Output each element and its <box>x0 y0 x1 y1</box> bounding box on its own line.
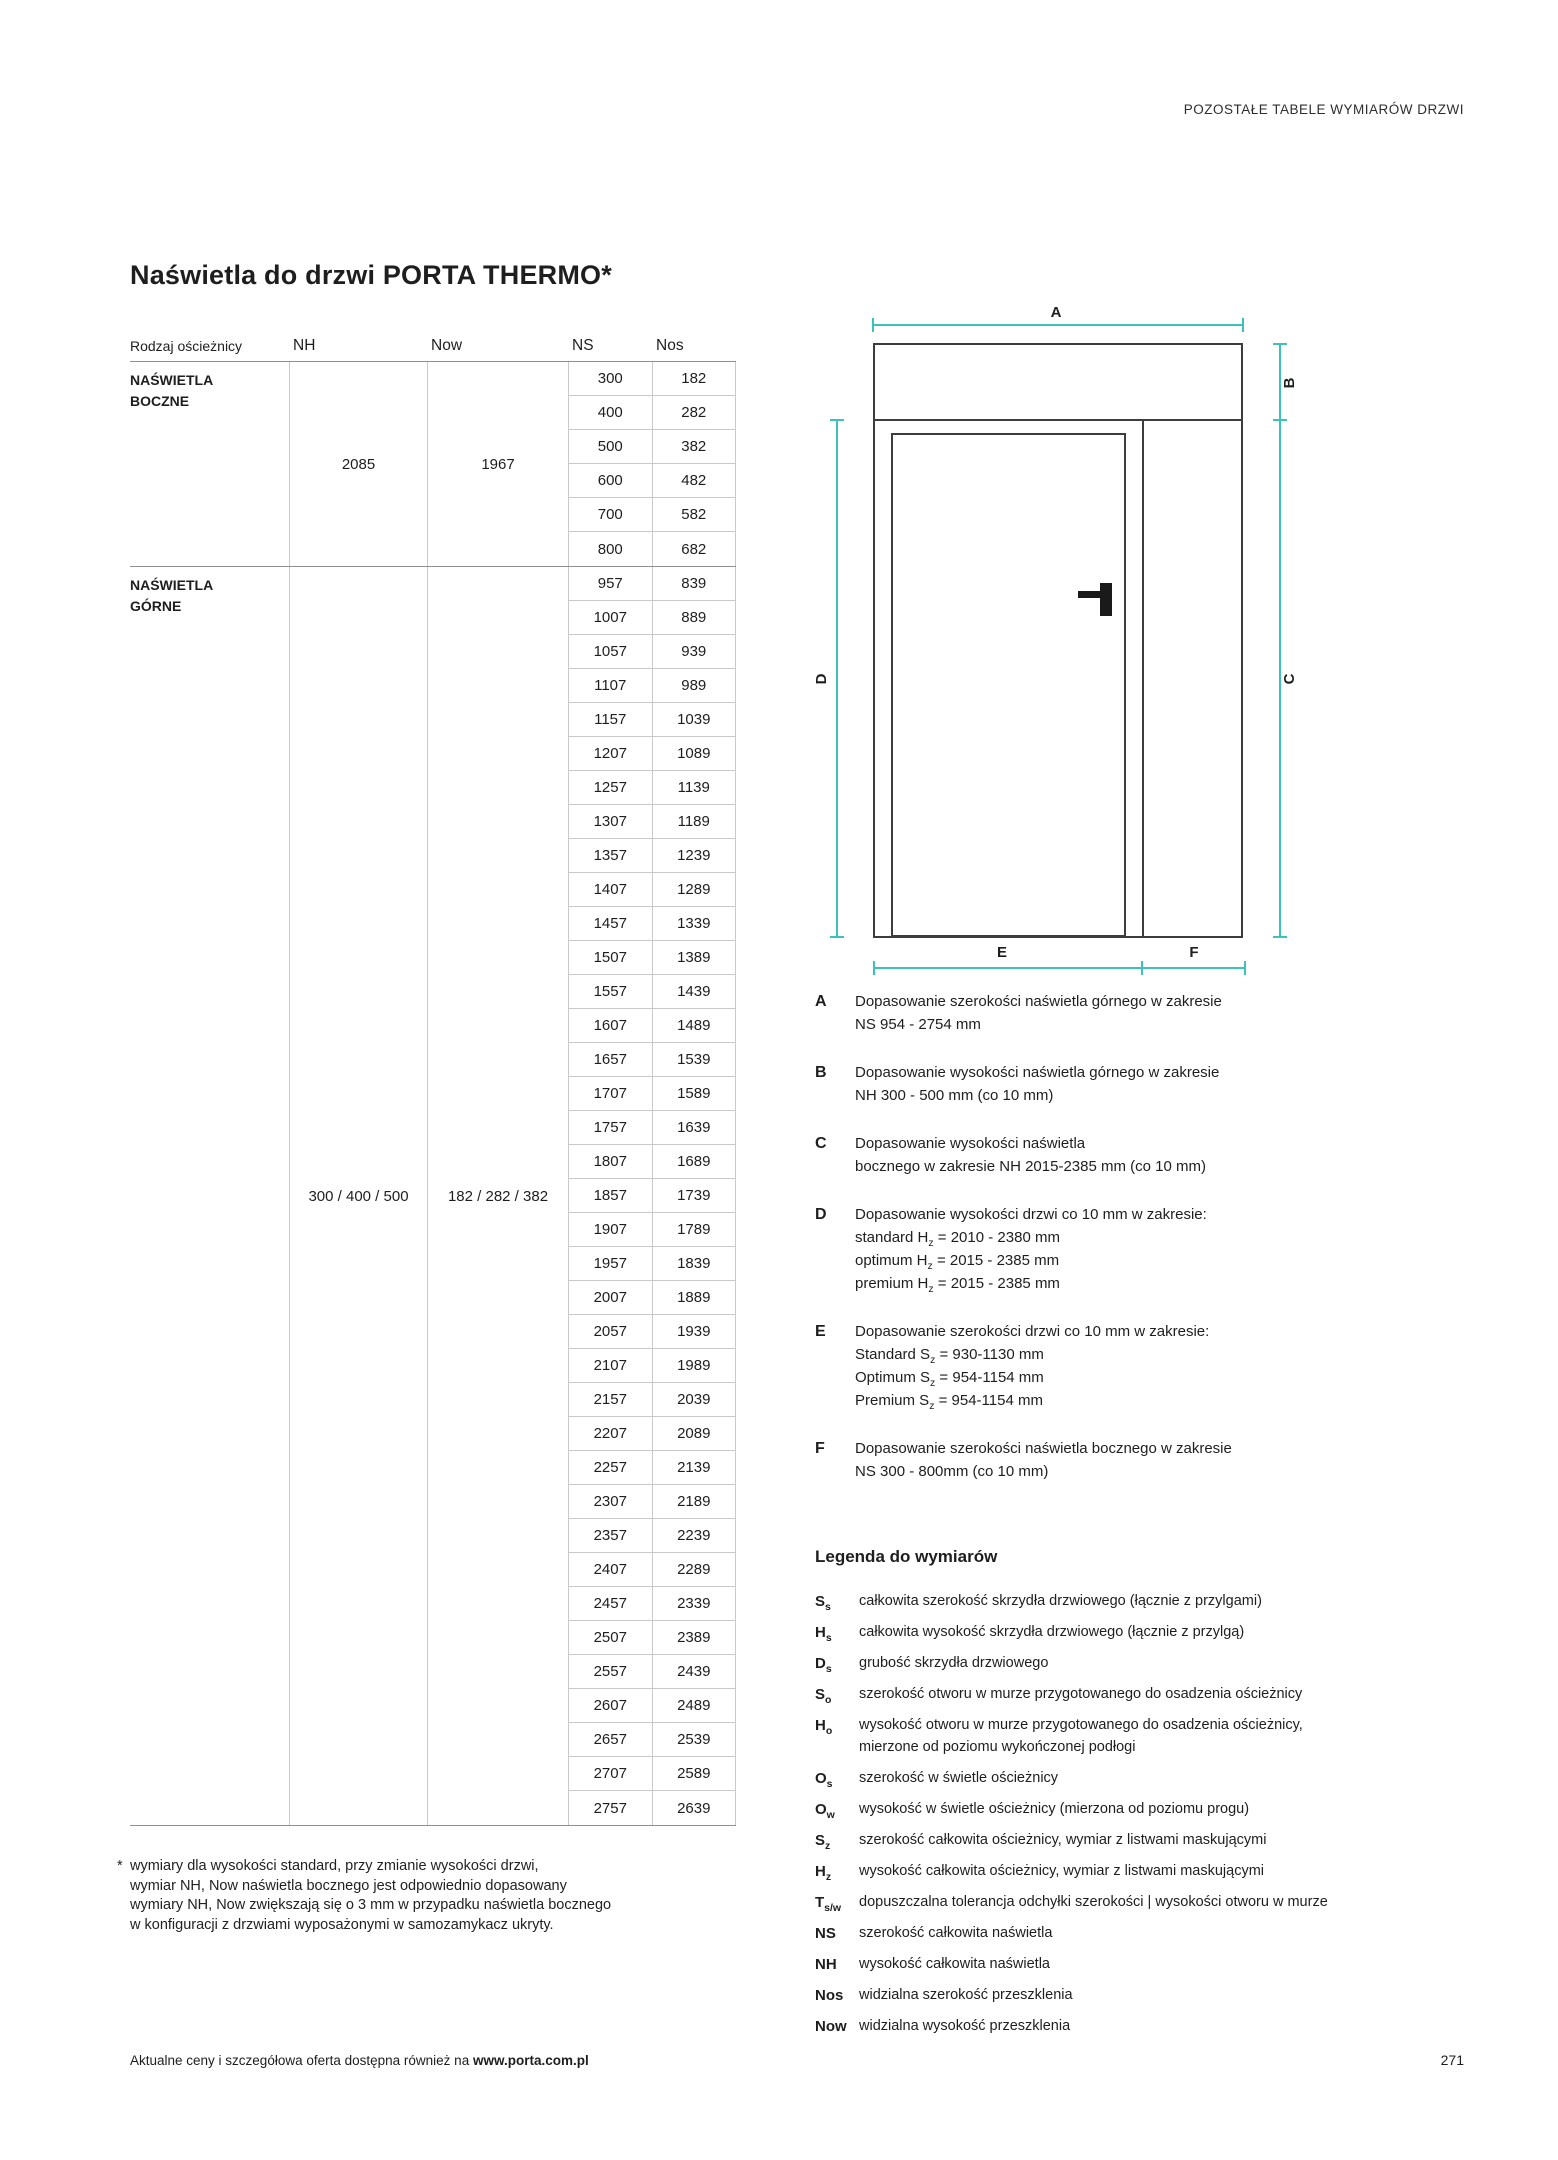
table-row: 24572339 <box>569 1587 735 1621</box>
column-header-ns: NS <box>568 337 652 355</box>
diagram-label-b: B <box>1281 377 1298 388</box>
ns-value: 1157 <box>569 703 653 736</box>
footnote-line: wymiary NH, Now zwiększają się o 3 mm w … <box>130 1896 611 1916</box>
door-handle-plate <box>1100 583 1112 616</box>
dimensions-table: Rodzaj ościeżnicy NH Now NS Nos NAŚWIETL… <box>130 330 736 1826</box>
ns-value: 1407 <box>569 873 653 906</box>
legend-item: Soszerokość otworu w murze przygotowaneg… <box>815 1684 1445 1706</box>
table-row: 15571439 <box>569 975 735 1009</box>
nos-value: 582 <box>653 498 736 531</box>
dimension-description: Dopasowanie wysokości naświetlabocznego … <box>855 1132 1206 1178</box>
legend-symbol: Ds <box>815 1653 859 1675</box>
nos-value: 2339 <box>653 1587 736 1620</box>
footer-link[interactable]: www.porta.com.pl <box>473 2053 589 2068</box>
legend-item: NSszerokość całkowita naświetla <box>815 1923 1445 1945</box>
ns-value: 2507 <box>569 1621 653 1654</box>
ns-value: 500 <box>569 430 653 463</box>
nos-value: 2439 <box>653 1655 736 1688</box>
ns-value: 2157 <box>569 1383 653 1416</box>
ns-value: 2007 <box>569 1281 653 1314</box>
table-row: 17571639 <box>569 1111 735 1145</box>
dimension-letter: F <box>815 1437 855 1483</box>
table-row: 19571839 <box>569 1247 735 1281</box>
legend-symbol: Sz <box>815 1830 859 1852</box>
table-row: 14071289 <box>569 873 735 907</box>
table-row: 700582 <box>569 498 735 532</box>
diagram-label-a: A <box>1051 304 1062 321</box>
now-value: 1967 <box>427 362 568 566</box>
footnote-line: wymiary dla wysokości standard, przy zmi… <box>130 1857 611 1877</box>
legend-description: całkowita szerokość skrzydła drzwiowego … <box>859 1591 1262 1613</box>
table-row: 13571239 <box>569 839 735 873</box>
dimension-description: Dopasowanie wysokości drzwi co 10 mm w z… <box>855 1203 1207 1295</box>
column-header-rodzaj: Rodzaj ościeżnicy <box>130 338 289 354</box>
table-row: 20071889 <box>569 1281 735 1315</box>
table-row: 26572539 <box>569 1723 735 1757</box>
table-group-naswietla-boczne: NAŚWIETLA BOCZNE 2085 1967 3001824002825… <box>130 361 736 566</box>
legend-item: Hscałkowita wysokość skrzydła drzwiowego… <box>815 1622 1445 1644</box>
table-row: 12071089 <box>569 737 735 771</box>
legend-symbol: Ts/w <box>815 1892 859 1914</box>
group-label: NAŚWIETLA GÓRNE <box>130 567 289 1825</box>
column-header-now: Now <box>427 337 568 355</box>
dimension-description: Dopasowanie szerokości naświetla górnego… <box>855 990 1222 1036</box>
legend-description: dopuszczalna tolerancja odchyłki szeroko… <box>859 1892 1328 1914</box>
nos-value: 1739 <box>653 1179 736 1212</box>
nos-value: 1139 <box>653 771 736 804</box>
legend-description: wysokość w świetle ościeżnicy (mierzona … <box>859 1799 1249 1821</box>
legend-symbol: Nos <box>815 1985 859 2007</box>
nos-value: 1039 <box>653 703 736 736</box>
dimension-letter: D <box>815 1203 855 1295</box>
legend-item: Ts/wdopuszczalna tolerancja odchyłki sze… <box>815 1892 1445 1914</box>
door-leaf <box>892 434 1125 936</box>
dimension-letter: E <box>815 1320 855 1412</box>
nos-value: 682 <box>653 532 736 566</box>
nh-value: 2085 <box>289 362 427 566</box>
legend-description: wysokość całkowita ościeżnicy, wymiar z … <box>859 1861 1264 1883</box>
ns-value: 2457 <box>569 1587 653 1620</box>
ns-value: 1057 <box>569 635 653 668</box>
ns-value: 2207 <box>569 1417 653 1450</box>
table-row: 400282 <box>569 396 735 430</box>
ns-value: 1807 <box>569 1145 653 1178</box>
ns-value: 2257 <box>569 1451 653 1484</box>
table-row: 25572439 <box>569 1655 735 1689</box>
footnote-text: wymiary dla wysokości standard, przy zmi… <box>130 1857 611 1935</box>
ns-value: 1757 <box>569 1111 653 1144</box>
table-row: 1057939 <box>569 635 735 669</box>
table-row: 17071589 <box>569 1077 735 1111</box>
page-title: Naświetla do drzwi PORTA THERMO* <box>130 260 612 291</box>
nos-value: 1989 <box>653 1349 736 1382</box>
ns-value: 1557 <box>569 975 653 1008</box>
legend-description: grubość skrzydła drzwiowego <box>859 1653 1048 1675</box>
diagram-label-f: F <box>1189 944 1198 961</box>
table-row: 12571139 <box>569 771 735 805</box>
ns-value: 1207 <box>569 737 653 770</box>
legend-symbol: Ow <box>815 1799 859 1821</box>
ns-value: 1457 <box>569 907 653 940</box>
table-row: 800682 <box>569 532 735 566</box>
legend-description: całkowita wysokość skrzydła drzwiowego (… <box>859 1622 1244 1644</box>
ns-value: 957 <box>569 567 653 600</box>
legend-item: NHwysokość całkowita naświetla <box>815 1954 1445 1976</box>
nos-value: 1339 <box>653 907 736 940</box>
page-footer: Aktualne ceny i szczegółowa oferta dostę… <box>130 2053 589 2068</box>
ns-value: 1007 <box>569 601 653 634</box>
legend-symbol: Hs <box>815 1622 859 1644</box>
nos-value: 1639 <box>653 1111 736 1144</box>
table-row: 1007889 <box>569 601 735 635</box>
legend-description: szerokość całkowita naświetla <box>859 1923 1052 1945</box>
nos-value: 2539 <box>653 1723 736 1756</box>
dimension-description: Dopasowanie szerokości drzwi co 10 mm w … <box>855 1320 1209 1412</box>
dimension-description: Dopasowanie szerokości naświetla boczneg… <box>855 1437 1232 1483</box>
symbol-legend-items: Sscałkowita szerokość skrzydła drzwioweg… <box>815 1591 1445 2037</box>
footnote-line: w konfiguracji z drzwiami wyposażonymi w… <box>130 1916 611 1936</box>
dimension-note-b: BDopasowanie wysokości naświetla górnego… <box>815 1061 1425 1107</box>
catalog-page: { "page": { "running_header": "POZOSTAŁE… <box>0 0 1558 2160</box>
nos-value: 939 <box>653 635 736 668</box>
table-row: 18071689 <box>569 1145 735 1179</box>
dimension-legend: ADopasowanie szerokości naświetla górneg… <box>815 990 1425 1508</box>
nos-value: 1289 <box>653 873 736 906</box>
nos-value: 1439 <box>653 975 736 1008</box>
ns-value: 300 <box>569 362 653 395</box>
table-row: 23572239 <box>569 1519 735 1553</box>
nos-value: 1689 <box>653 1145 736 1178</box>
table-row: 500382 <box>569 430 735 464</box>
ns-value: 1957 <box>569 1247 653 1280</box>
nos-value: 1389 <box>653 941 736 974</box>
dimension-description: Dopasowanie wysokości naświetla górnego … <box>855 1061 1219 1107</box>
symbol-legend-title: Legenda do wymiarów <box>815 1547 1445 1567</box>
nos-value: 282 <box>653 396 736 429</box>
group-label: NAŚWIETLA BOCZNE <box>130 362 289 566</box>
nos-value: 989 <box>653 669 736 702</box>
table-row: 14571339 <box>569 907 735 941</box>
table-row: 22572139 <box>569 1451 735 1485</box>
table-row: 18571739 <box>569 1179 735 1213</box>
table-row: 20571939 <box>569 1315 735 1349</box>
table-row: 26072489 <box>569 1689 735 1723</box>
legend-item: Osszerokość w świetle ościeżnicy <box>815 1768 1445 1790</box>
nos-value: 2489 <box>653 1689 736 1722</box>
nos-value: 1789 <box>653 1213 736 1246</box>
ns-value: 400 <box>569 396 653 429</box>
diagram-label-c: C <box>1281 673 1298 684</box>
legend-symbol: NH <box>815 1954 859 1976</box>
footnote: * wymiary dla wysokości standard, przy z… <box>117 1857 611 1935</box>
nos-value: 839 <box>653 567 736 600</box>
table-row: 25072389 <box>569 1621 735 1655</box>
nos-value: 1489 <box>653 1009 736 1042</box>
nos-value: 482 <box>653 464 736 497</box>
table-row: 16571539 <box>569 1043 735 1077</box>
nos-value: 2139 <box>653 1451 736 1484</box>
legend-description: szerokość otworu w murze przygotowanego … <box>859 1684 1302 1706</box>
ns-value: 2607 <box>569 1689 653 1722</box>
nos-value: 2239 <box>653 1519 736 1552</box>
legend-item: Noswidzialna szerokość przeszklenia <box>815 1985 1445 2007</box>
nos-value: 1589 <box>653 1077 736 1110</box>
legend-symbol: Now <box>815 2016 859 2038</box>
footer-text: Aktualne ceny i szczegółowa oferta dostę… <box>130 2053 473 2068</box>
table-row: 27572639 <box>569 1791 735 1825</box>
legend-description: widzialna wysokość przeszklenia <box>859 2016 1070 2038</box>
table-row: 22072089 <box>569 1417 735 1451</box>
legend-description: widzialna szerokość przeszklenia <box>859 1985 1073 2007</box>
nos-value: 889 <box>653 601 736 634</box>
ns-value: 1607 <box>569 1009 653 1042</box>
ns-value: 1907 <box>569 1213 653 1246</box>
ns-value: 2707 <box>569 1757 653 1790</box>
ns-value: 1257 <box>569 771 653 804</box>
ns-nos-rows: 300182400282500382600482700582800682 <box>568 362 736 566</box>
legend-item: Sscałkowita szerokość skrzydła drzwioweg… <box>815 1591 1445 1613</box>
ns-value: 2757 <box>569 1791 653 1825</box>
ns-value: 2657 <box>569 1723 653 1756</box>
nos-value: 1939 <box>653 1315 736 1348</box>
table-row: 13071189 <box>569 805 735 839</box>
ns-value: 1357 <box>569 839 653 872</box>
table-group-naswietla-gorne: NAŚWIETLA GÓRNE 300 / 400 / 500 182 / 28… <box>130 566 736 1825</box>
table-row: 957839 <box>569 567 735 601</box>
legend-description: szerokość całkowita ościeżnicy, wymiar z… <box>859 1830 1266 1852</box>
ns-value: 1857 <box>569 1179 653 1212</box>
table-row: 21071989 <box>569 1349 735 1383</box>
door-handle-lever <box>1078 591 1102 598</box>
table-row: 19071789 <box>569 1213 735 1247</box>
nos-value: 1089 <box>653 737 736 770</box>
footnote-line: wymiar NH, Now naświetla bocznego jest o… <box>130 1877 611 1897</box>
table-row: 15071389 <box>569 941 735 975</box>
ns-value: 2307 <box>569 1485 653 1518</box>
dimension-note-f: FDopasowanie szerokości naświetla boczne… <box>815 1437 1425 1483</box>
ns-value: 600 <box>569 464 653 497</box>
legend-symbol: NS <box>815 1923 859 1945</box>
legend-item: Szszerokość całkowita ościeżnicy, wymiar… <box>815 1830 1445 1852</box>
legend-description: wysokość całkowita naświetla <box>859 1954 1050 1976</box>
ns-value: 800 <box>569 532 653 566</box>
nh-value: 300 / 400 / 500 <box>289 567 427 1825</box>
nos-value: 2639 <box>653 1791 736 1825</box>
ns-value: 1107 <box>569 669 653 702</box>
ns-value: 2107 <box>569 1349 653 1382</box>
door-diagram: A B D C E F <box>810 290 1315 990</box>
footnote-asterisk: * <box>117 1857 130 1935</box>
legend-item: Nowwidzialna wysokość przeszklenia <box>815 2016 1445 2038</box>
legend-symbol: Hz <box>815 1861 859 1883</box>
ns-value: 2407 <box>569 1553 653 1586</box>
ns-value: 700 <box>569 498 653 531</box>
table-row: 21572039 <box>569 1383 735 1417</box>
table-header-row: Rodzaj ościeżnicy NH Now NS Nos <box>130 330 736 361</box>
legend-symbol: Ss <box>815 1591 859 1613</box>
dimension-letter: B <box>815 1061 855 1107</box>
ns-value: 1657 <box>569 1043 653 1076</box>
now-value: 182 / 282 / 382 <box>427 567 568 1825</box>
ns-nos-rows: 9578391007889105793911079891157103912071… <box>568 567 736 1825</box>
nos-value: 1839 <box>653 1247 736 1280</box>
table-row: 16071489 <box>569 1009 735 1043</box>
ns-value: 1507 <box>569 941 653 974</box>
table-row: 27072589 <box>569 1757 735 1791</box>
legend-item: Owwysokość w świetle ościeżnicy (mierzon… <box>815 1799 1445 1821</box>
ns-value: 2357 <box>569 1519 653 1552</box>
legend-item: Howysokość otworu w murze przygotowanego… <box>815 1715 1445 1758</box>
nos-value: 182 <box>653 362 736 395</box>
table-row: 11571039 <box>569 703 735 737</box>
nos-value: 2389 <box>653 1621 736 1654</box>
nos-value: 1539 <box>653 1043 736 1076</box>
ns-value: 1307 <box>569 805 653 838</box>
ns-value: 1707 <box>569 1077 653 1110</box>
table-row: 300182 <box>569 362 735 396</box>
nos-value: 382 <box>653 430 736 463</box>
legend-symbol: Os <box>815 1768 859 1790</box>
symbol-legend: Legenda do wymiarów Sscałkowita szerokoś… <box>815 1547 1445 2047</box>
ns-value: 2057 <box>569 1315 653 1348</box>
legend-item: Dsgrubość skrzydła drzwiowego <box>815 1653 1445 1675</box>
nos-value: 1189 <box>653 805 736 838</box>
table-row: 23072189 <box>569 1485 735 1519</box>
table-row: 24072289 <box>569 1553 735 1587</box>
column-header-nos: Nos <box>652 337 736 355</box>
dimension-letter: C <box>815 1132 855 1178</box>
nos-value: 2289 <box>653 1553 736 1586</box>
nos-value: 1239 <box>653 839 736 872</box>
running-header: POZOSTAŁE TABELE WYMIARÓW DRZWI <box>1184 102 1464 117</box>
diagram-label-d: D <box>813 673 830 684</box>
nos-value: 2189 <box>653 1485 736 1518</box>
nos-value: 2589 <box>653 1757 736 1790</box>
table-row: 600482 <box>569 464 735 498</box>
dimension-note-a: ADopasowanie szerokości naświetla górneg… <box>815 990 1425 1036</box>
nos-value: 2089 <box>653 1417 736 1450</box>
column-header-nh: NH <box>289 337 427 355</box>
nos-value: 2039 <box>653 1383 736 1416</box>
nos-value: 1889 <box>653 1281 736 1314</box>
page-number: 271 <box>1441 2052 1464 2068</box>
diagram-label-e: E <box>997 944 1007 961</box>
legend-symbol: So <box>815 1684 859 1706</box>
frame-outline <box>874 344 1242 937</box>
ns-value: 2557 <box>569 1655 653 1688</box>
dimension-letter: A <box>815 990 855 1036</box>
legend-item: Hzwysokość całkowita ościeżnicy, wymiar … <box>815 1861 1445 1883</box>
legend-description: wysokość otworu w murze przygotowanego d… <box>859 1715 1303 1758</box>
legend-description: szerokość w świetle ościeżnicy <box>859 1768 1058 1790</box>
table-row: 1107989 <box>569 669 735 703</box>
dimension-note-c: CDopasowanie wysokości naświetlabocznego… <box>815 1132 1425 1178</box>
legend-symbol: Ho <box>815 1715 859 1758</box>
dimension-note-d: DDopasowanie wysokości drzwi co 10 mm w … <box>815 1203 1425 1295</box>
dimension-note-e: EDopasowanie szerokości drzwi co 10 mm w… <box>815 1320 1425 1412</box>
